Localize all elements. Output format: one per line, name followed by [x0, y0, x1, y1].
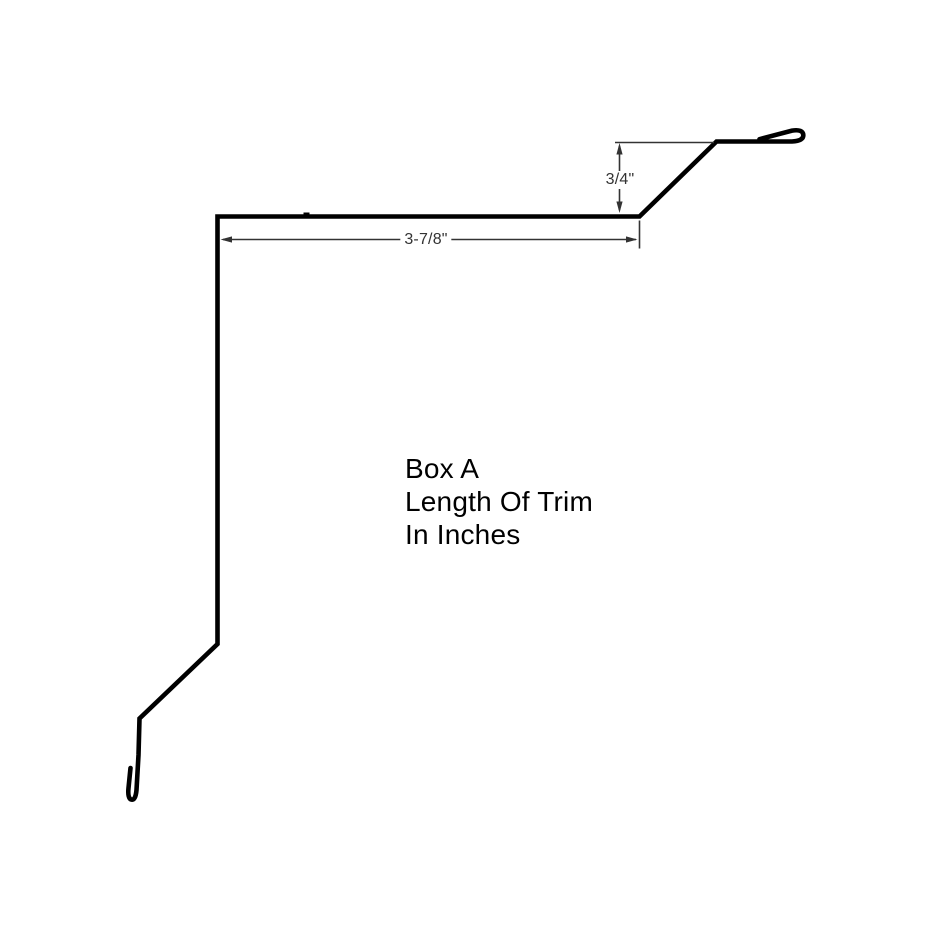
arrowhead-right-icon: [626, 236, 638, 242]
flange-height-dimension-label: 3/4": [602, 171, 639, 189]
note-line-1: Box A: [405, 452, 593, 485]
drawing-canvas: 3/4" 3-7/8" Box A Length Of Trim In Inch…: [0, 0, 933, 934]
top-run-dimension-label: 3-7/8": [400, 231, 451, 249]
arrowhead-left-icon: [221, 236, 233, 242]
arrowhead-up-icon: [616, 143, 622, 155]
profile-joint-tick: [304, 213, 310, 217]
note-line-2: Length Of Trim: [405, 485, 593, 518]
drawing-note: Box A Length Of Trim In Inches: [405, 452, 593, 551]
arrowhead-down-icon: [616, 202, 622, 214]
note-line-3: In Inches: [405, 518, 593, 551]
